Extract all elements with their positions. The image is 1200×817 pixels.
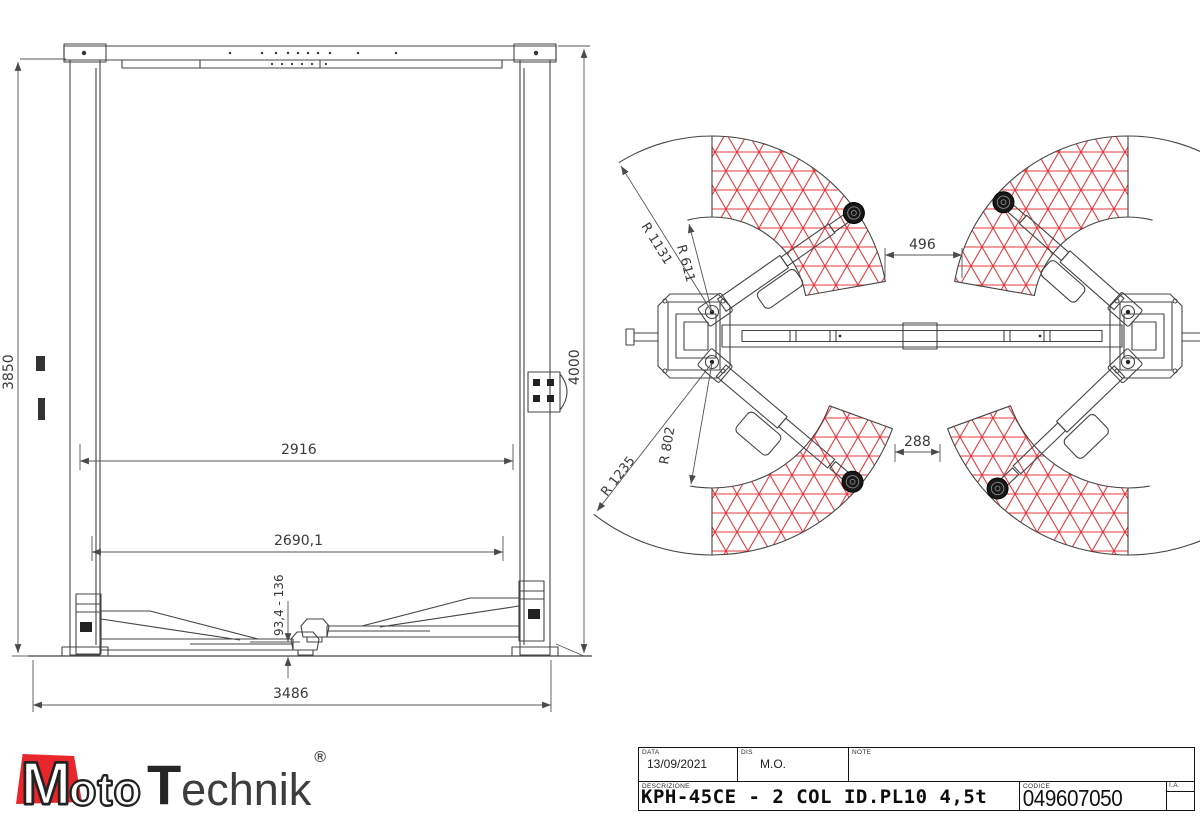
- lock-lever: [36, 356, 45, 420]
- dim-total-height: 4000: [567, 349, 583, 385]
- note-cell: NOTE: [849, 748, 1194, 781]
- code-value: 049607050: [1020, 788, 1151, 809]
- drafter-value: M.O.: [738, 757, 848, 771]
- description-value: KPH-45CE - 2 COL ID.PL10 4,5t: [639, 788, 1019, 807]
- drafter-cell: DIS M.O.: [738, 748, 849, 781]
- date-cell: DATA 13/09/2021: [639, 748, 738, 781]
- description-cell: DESCRIZIONE KPH-45CE - 2 COL ID.PL10 4,5…: [639, 782, 1020, 811]
- plan-view: R 1131 R 611 R 1235 R 802 496 288: [594, 136, 1200, 555]
- logo-letter-m: M: [21, 760, 69, 808]
- rear-reach-hatch: [712, 406, 892, 555]
- ia-label: I.A.: [1167, 782, 1194, 792]
- logo-text-oto: oto: [69, 772, 142, 808]
- date-value: 13/09/2021: [639, 757, 737, 771]
- technical-drawing: 3850 4000 2916 2690,1 93,4 - 136 3486: [0, 0, 1200, 745]
- control-box: [528, 372, 567, 412]
- right-column: [512, 60, 567, 656]
- date-label: DATA: [639, 748, 737, 757]
- right-column-plan: [1110, 294, 1200, 378]
- mototechnik-logo: M oto T echnik ®: [16, 748, 326, 808]
- dim-inner-width: 2916: [281, 442, 317, 458]
- dim-radius-inner-rear: R 802: [657, 426, 678, 466]
- note-label: NOTE: [849, 748, 1194, 757]
- title-block-row-top: DATA 13/09/2021 DIS M.O. NOTE: [639, 748, 1194, 781]
- logo-text-echnik: echnik: [181, 772, 311, 808]
- dim-radius-inner-front: R 611: [673, 243, 697, 284]
- right-arm-assembly: [301, 581, 544, 642]
- dim-radius-outer-rear: R 1235: [598, 454, 638, 500]
- dim-column-height: 3850: [1, 354, 17, 390]
- logo-letter-t: T: [147, 763, 181, 808]
- registered-trademark-icon: ®: [314, 752, 326, 765]
- dim-pad-height-range: 93,4 - 136: [272, 574, 286, 636]
- reach-zones-left: [594, 136, 893, 555]
- front-view: 3850 4000 2916 2690,1 93,4 - 136 3486: [1, 44, 592, 712]
- dim-drivethrough-width: 2690,1: [274, 533, 323, 549]
- dim-overall-width: 3486: [273, 686, 309, 702]
- title-block-row-bottom: DESCRIZIONE KPH-45CE - 2 COL ID.PL10 4,5…: [639, 781, 1194, 811]
- drafter-label: DIS: [738, 748, 848, 757]
- top-crossbar: [64, 44, 556, 68]
- ia-cell: I.A.: [1167, 782, 1194, 811]
- floor-crossbeam: [722, 323, 1122, 349]
- reach-zones-right: [948, 136, 1200, 555]
- dim-gap-front: 496: [909, 237, 936, 253]
- left-column: [36, 60, 108, 656]
- code-cell: CODICE 049607050: [1020, 782, 1167, 811]
- title-block: DATA 13/09/2021 DIS M.O. NOTE DESCRIZION…: [638, 747, 1195, 811]
- left-column-plan: [626, 294, 730, 378]
- dim-gap-rear: 288: [904, 434, 931, 450]
